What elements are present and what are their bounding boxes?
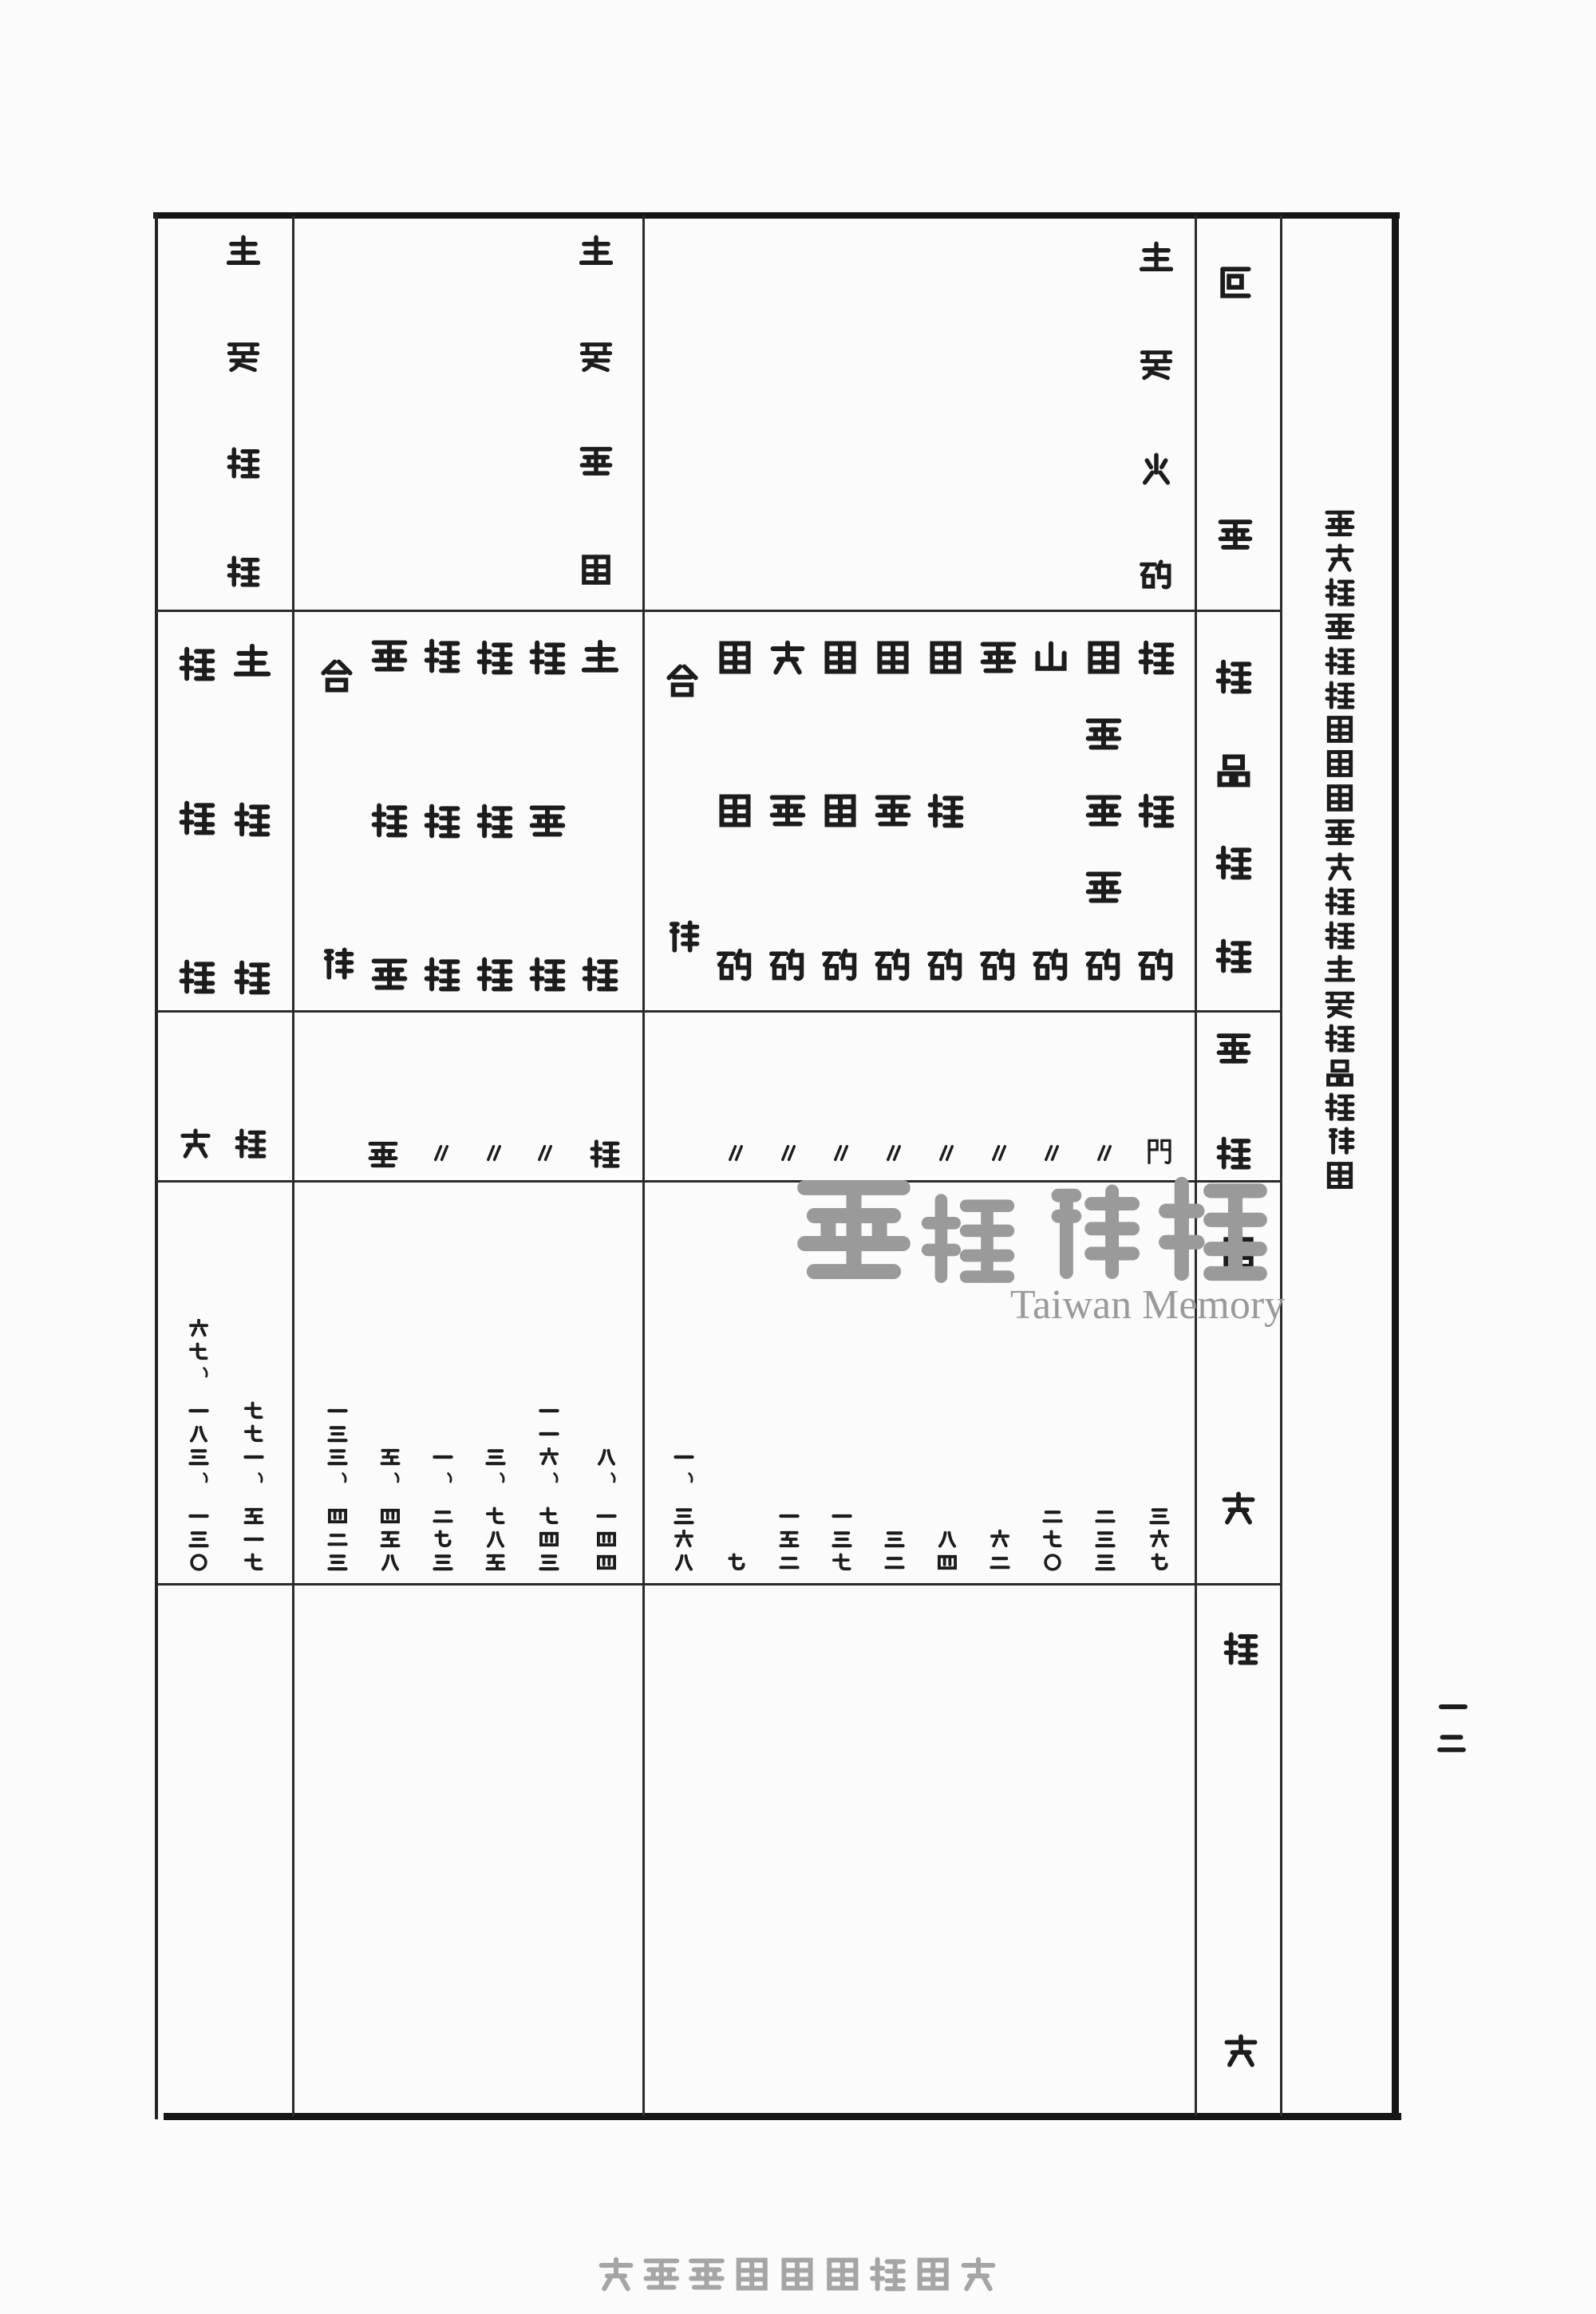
svg-text:Taiwan Memory: Taiwan Memory (1010, 1282, 1285, 1328)
